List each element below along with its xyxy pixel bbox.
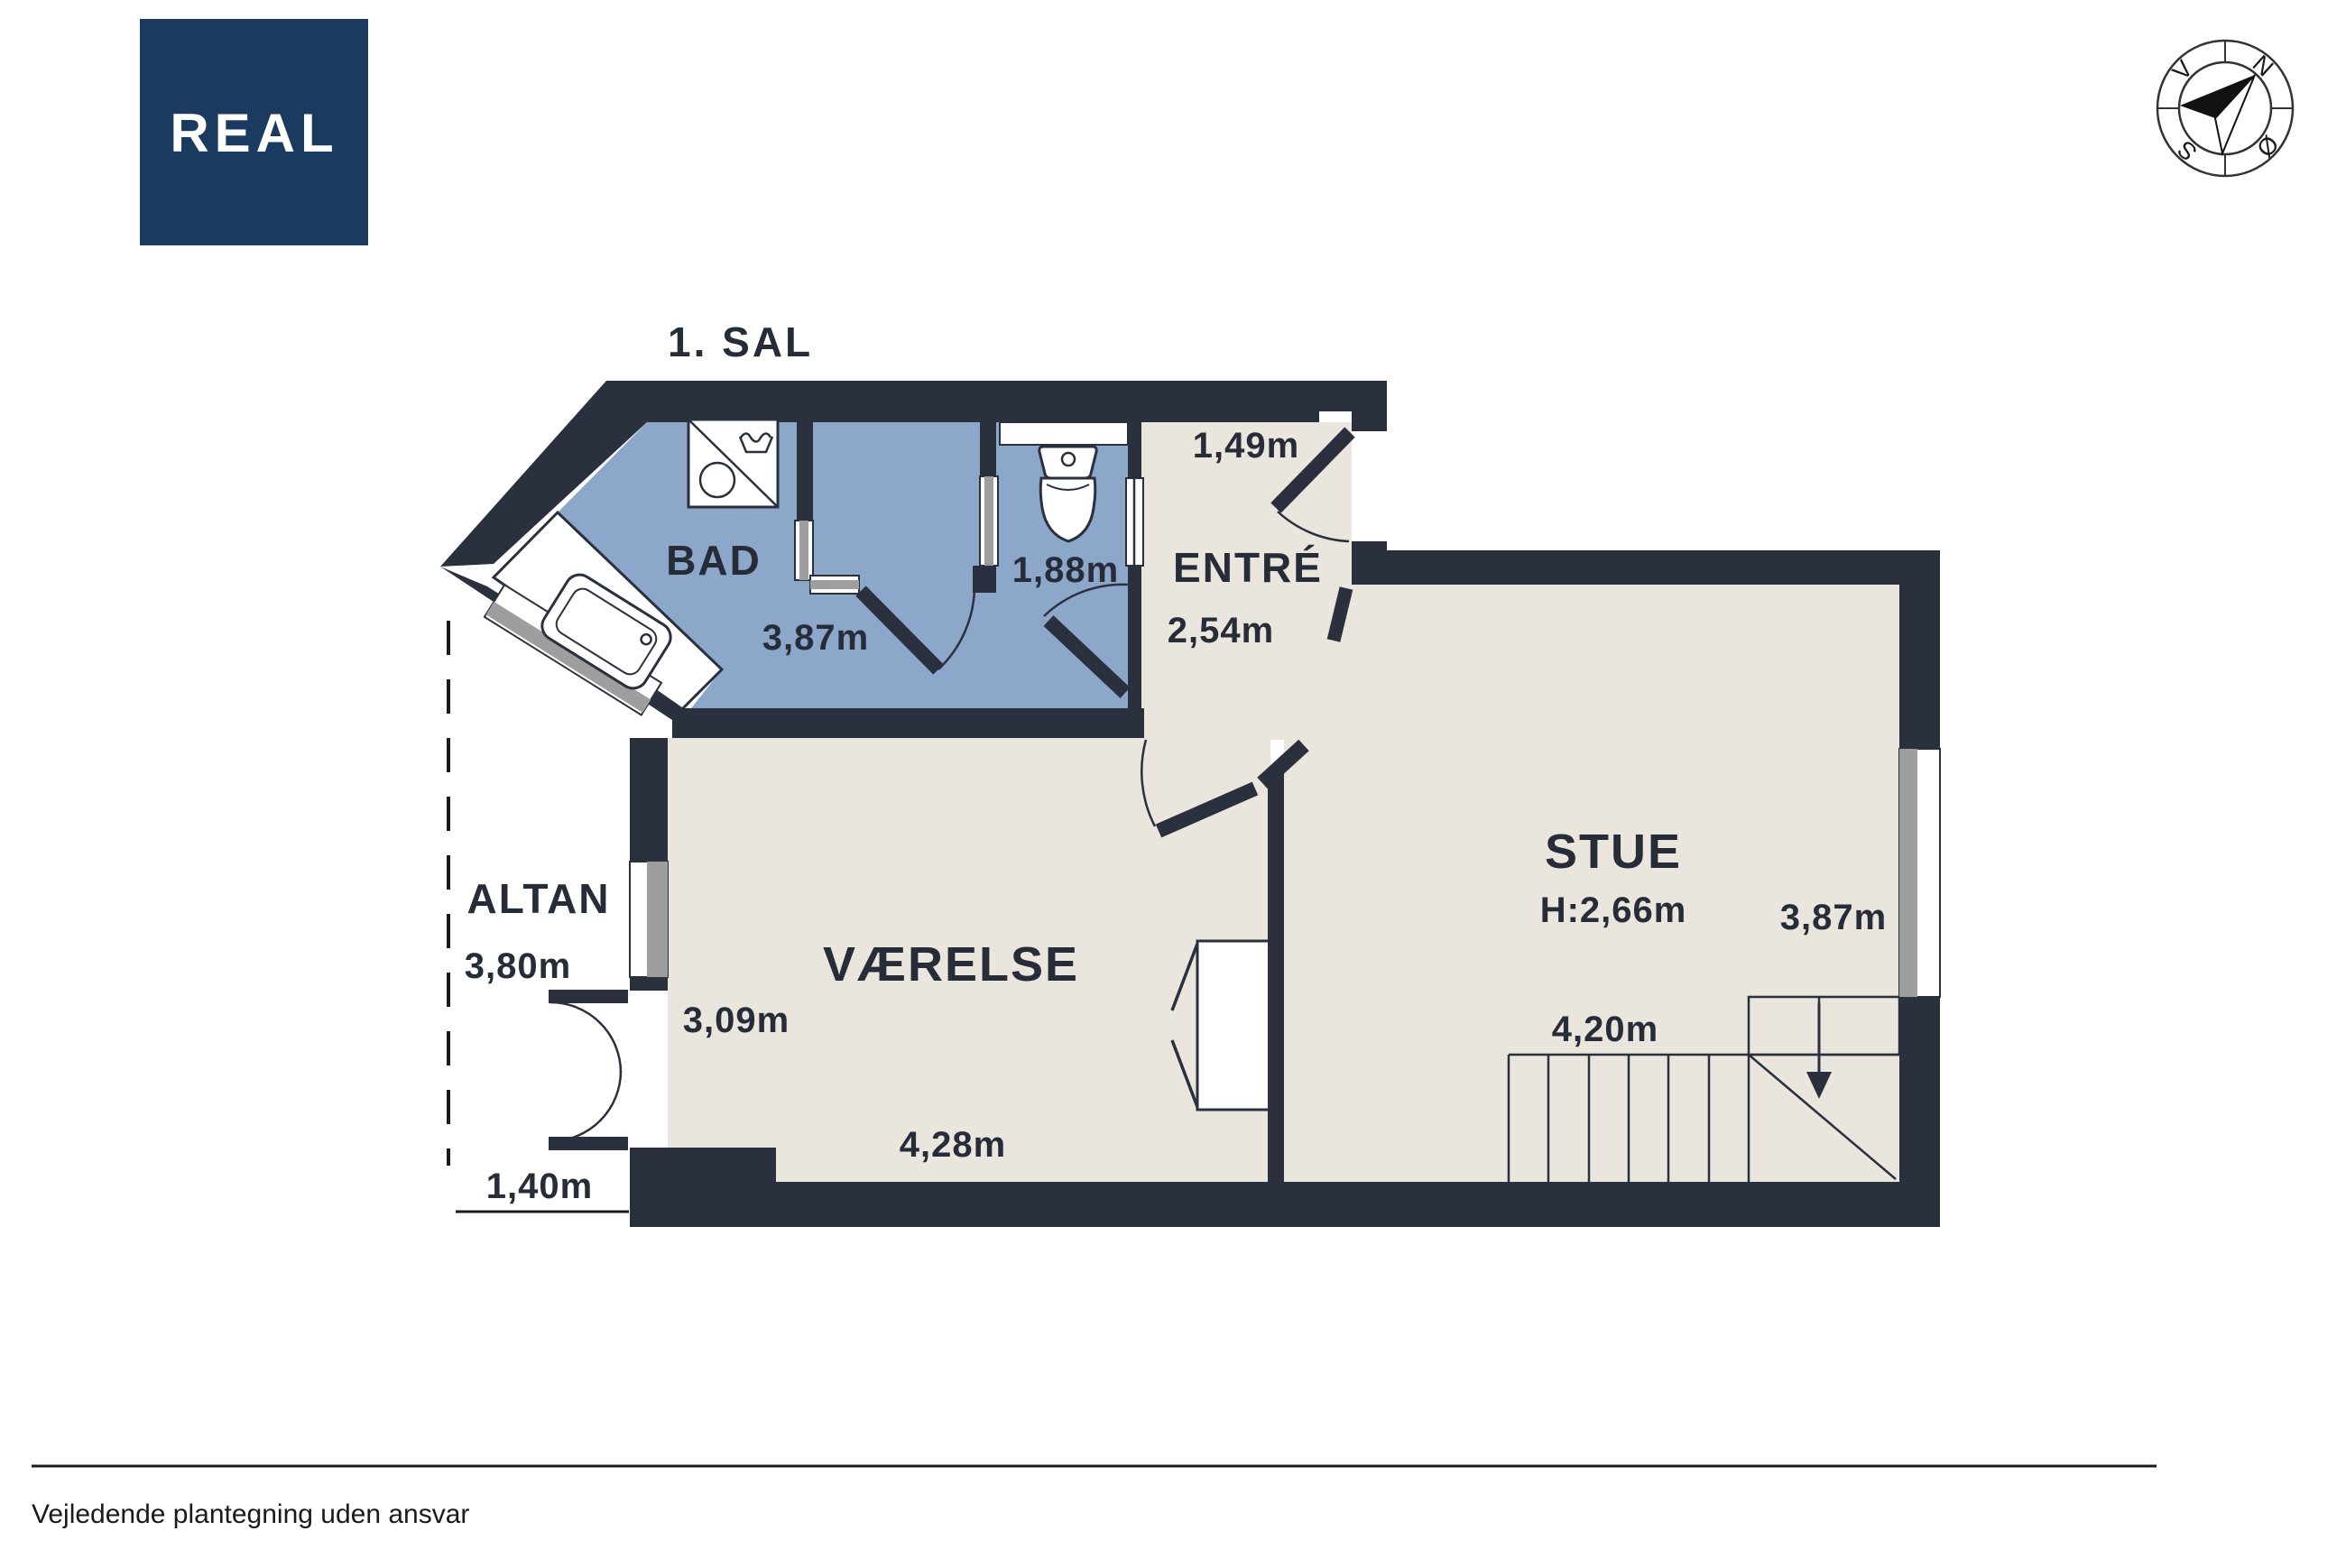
washing-machine	[688, 420, 778, 507]
floor-title: 1. SAL	[668, 318, 813, 365]
altan-door-leaf-top	[549, 990, 628, 1003]
wc-partition-stub-top	[980, 422, 996, 476]
entry-jamb	[1352, 422, 1387, 431]
wc-width-label: 1,88m	[1012, 550, 1119, 590]
entry-door-notch	[1319, 411, 1352, 422]
logo: REAL	[140, 19, 368, 245]
shower-glass-vertical-pane	[799, 521, 808, 580]
entre-west-wall	[1128, 422, 1141, 738]
toilet	[1039, 447, 1096, 541]
altan-door-leaf-bottom	[549, 1137, 628, 1150]
footer: Vejledende plantegning uden ansvar	[32, 1466, 2157, 1529]
stue-height-label: H:2,66m	[1540, 890, 1687, 930]
footer-disclaimer: Vejledende plantegning uden ansvar	[32, 1499, 469, 1529]
stue-width-label: 3,87m	[1780, 898, 1887, 937]
stue-north-wall-jamb	[1352, 541, 1387, 585]
wc-glass-partition-pane	[984, 476, 993, 566]
shower-glass-horizontal-pane	[810, 580, 859, 589]
altan-door-width-label: 1,40m	[486, 1167, 593, 1206]
bad-label: BAD	[666, 537, 762, 584]
bad-vaerelse-wall	[672, 708, 1144, 738]
floorplan-page: 1. SAL BAD 3,87m 1,88m ENTRÉ 1,49m 2,54m…	[0, 0, 2346, 1563]
entre-label: ENTRÉ	[1173, 544, 1323, 591]
stue-window-glass	[1899, 749, 1917, 997]
toilet-tank	[1039, 447, 1096, 478]
north-wall	[606, 381, 1387, 422]
vaerelse-width-label: 3,09m	[683, 1001, 790, 1040]
stue-length-label: 4,20m	[1552, 1010, 1658, 1049]
stue-label: STUE	[1545, 825, 1682, 879]
wardrobe-body	[1197, 941, 1270, 1110]
altan-label: ALTAN	[466, 875, 610, 922]
vaerelse-window-glass	[647, 862, 668, 977]
shower-partition-stub	[797, 422, 813, 522]
bad-width-label: 3,87m	[762, 618, 869, 658]
entre-depth-label: 1,49m	[1193, 426, 1299, 466]
south-wall	[630, 1182, 1940, 1227]
stue-north-wall	[1387, 550, 1899, 585]
altan-width-label: 3,80m	[465, 946, 571, 986]
wc-partition-stub-bottom	[973, 566, 996, 593]
south-wall-corner-block	[630, 1148, 776, 1182]
stue-floor	[1284, 585, 1899, 1182]
floorplan-drawing: 1. SAL BAD 3,87m 1,88m ENTRÉ 1,49m 2,54m…	[0, 0, 2346, 1563]
vaerelse-length-label: 4,28m	[900, 1125, 1006, 1165]
entre-width-label: 2,54m	[1168, 611, 1274, 650]
altan-door-swing-bottom	[550, 1071, 621, 1141]
compass-rose: N Ø S V	[2157, 41, 2293, 176]
wc-shelf	[1000, 422, 1128, 445]
vaerelse-label: VÆRELSE	[823, 937, 1079, 992]
altan-door-swing-top	[550, 1002, 621, 1073]
logo-text: REAL	[170, 103, 338, 163]
stue-west-wall	[1268, 771, 1284, 1182]
